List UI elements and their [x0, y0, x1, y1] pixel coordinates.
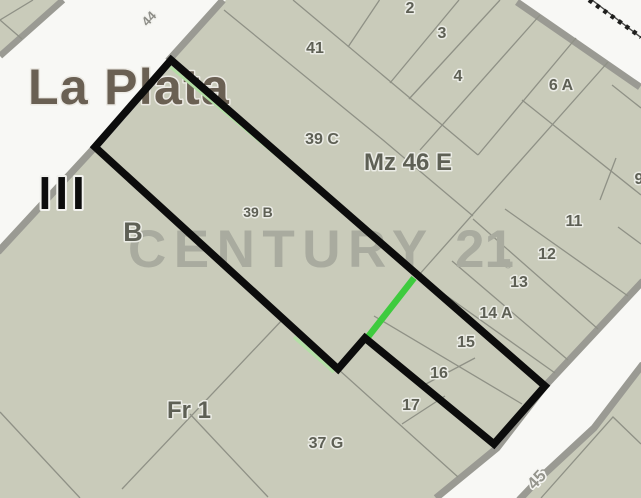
- svg-text:4: 4: [454, 68, 463, 85]
- svg-text:39 B: 39 B: [243, 204, 273, 220]
- svg-text:12: 12: [538, 246, 556, 263]
- svg-text:39 C: 39 C: [305, 131, 339, 148]
- svg-text:Fr 1: Fr 1: [167, 397, 211, 424]
- svg-text:3: 3: [438, 25, 447, 42]
- svg-text:2: 2: [406, 0, 415, 17]
- svg-text:.: .: [499, 220, 514, 279]
- svg-text:Mz 46 E: Mz 46 E: [364, 149, 452, 176]
- svg-text:41: 41: [306, 40, 324, 57]
- svg-text:9: 9: [635, 171, 641, 188]
- svg-text:III: III: [39, 167, 89, 219]
- svg-text:37 G: 37 G: [309, 435, 344, 452]
- svg-text:17: 17: [402, 397, 420, 414]
- svg-text:15: 15: [457, 334, 475, 351]
- svg-text:16: 16: [430, 365, 448, 382]
- svg-text:13: 13: [510, 274, 528, 291]
- svg-text:14 A: 14 A: [479, 305, 513, 322]
- svg-text:11: 11: [566, 213, 583, 230]
- svg-text:B: B: [123, 217, 143, 247]
- svg-text:6 A: 6 A: [549, 77, 574, 94]
